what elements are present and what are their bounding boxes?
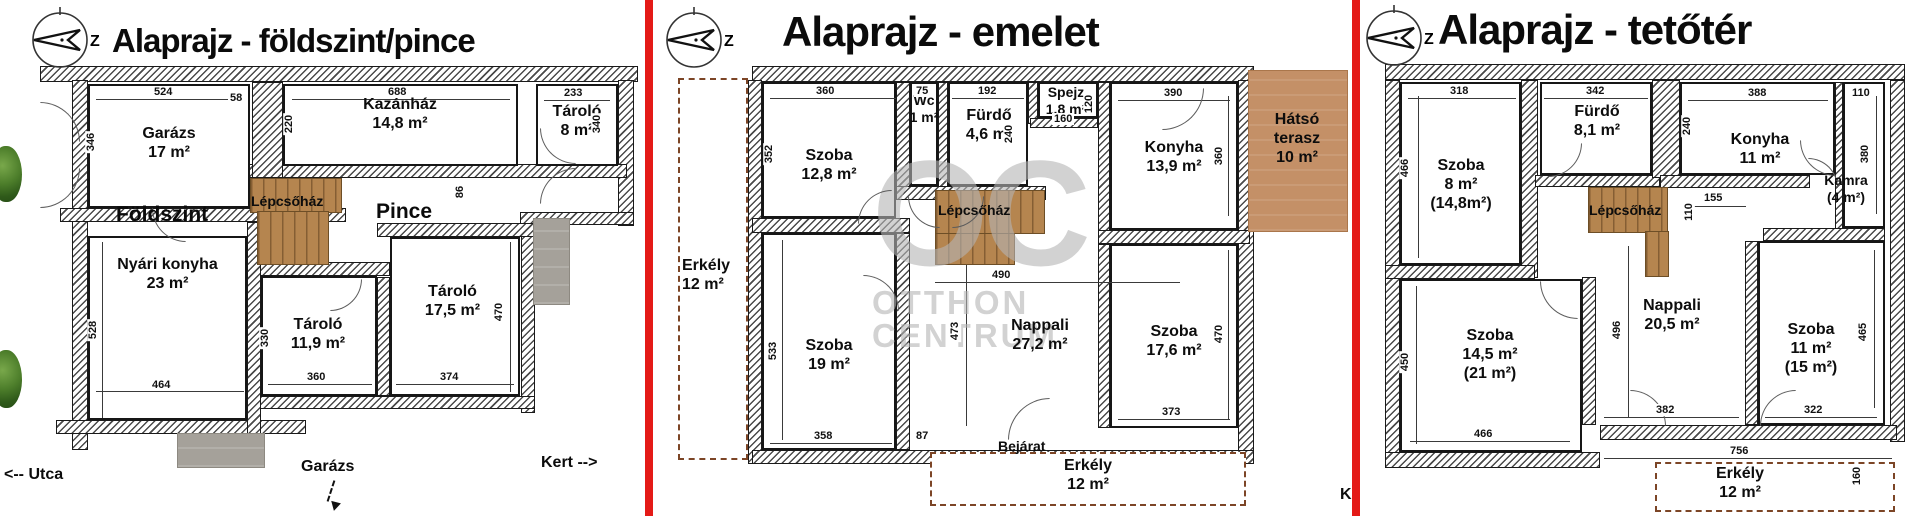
wall	[1385, 265, 1535, 279]
room-area: 12,8 m²	[774, 165, 884, 184]
dim-label: 688	[386, 86, 408, 98]
dim-label: 466	[1472, 428, 1494, 440]
dim-label: 388	[1746, 87, 1768, 99]
wall	[896, 233, 910, 450]
dim-label: 490	[990, 269, 1012, 281]
dim-label: 110	[1850, 87, 1872, 99]
dim-label: 360	[305, 371, 327, 383]
tree-icon	[0, 350, 22, 408]
dim-label: 466	[1399, 157, 1411, 179]
room-name: Erkély	[1698, 464, 1782, 483]
dim-label: 87	[914, 430, 930, 442]
room-label: Tároló 17,5 m²	[400, 282, 505, 320]
room-area: 12 m²	[1698, 483, 1782, 502]
floorplan-sheet: Z Alaprajz - földszint/pince Lépcsőház F…	[0, 0, 1920, 516]
room-name: Tároló	[268, 315, 368, 334]
room-area: 12 m²	[682, 275, 746, 294]
wall	[1652, 80, 1680, 178]
room-area: 17 m²	[114, 143, 224, 162]
dim-label: 155	[1702, 192, 1724, 204]
room-label: Szoba 8 m² (14,8m²)	[1404, 156, 1518, 214]
room-name: Nappali	[985, 316, 1095, 335]
room-label: Nappali 20,5 m²	[1612, 296, 1732, 334]
dim-label: 220	[283, 113, 295, 135]
room-label: Szoba 19 m²	[774, 336, 884, 374]
dim-label: 380	[1859, 143, 1871, 165]
room-name: Erkély	[1048, 456, 1128, 475]
dim-label: 390	[1162, 87, 1184, 99]
room-name: Garázs	[114, 124, 224, 143]
room-area: (15 m²)	[1752, 358, 1870, 377]
dim-label: 240	[1003, 123, 1015, 145]
dim-label: 86	[454, 184, 466, 200]
wall	[1835, 82, 1843, 230]
room-name: Hátsó	[1252, 110, 1342, 129]
note-kert: Kert -->	[541, 454, 597, 472]
stairs-label: Lépcsőház	[1589, 202, 1661, 219]
cut-label: K	[1340, 485, 1352, 504]
dim-label: 322	[1802, 404, 1824, 416]
note-utca: <-- Utca	[4, 466, 63, 484]
room-name: Szoba	[1420, 326, 1560, 345]
entry-stoop	[533, 218, 570, 305]
wall	[1890, 80, 1905, 442]
stairs	[1645, 231, 1669, 277]
room-area: 14,8 m²	[340, 114, 460, 133]
room-label: Szoba 11 m² (15 m²)	[1752, 320, 1870, 378]
stairs	[935, 233, 1015, 265]
room-area: (14,8m²)	[1404, 194, 1518, 213]
wall	[752, 66, 1254, 82]
dim-label: 373	[1160, 406, 1182, 418]
dim-label: 192	[976, 85, 998, 97]
plan1-title: Alaprajz - földszint/pince	[112, 22, 475, 60]
plan3-title: Alaprajz - tetőtér	[1438, 6, 1751, 54]
dim-label: 470	[493, 301, 505, 323]
room-label: Szoba 14,5 m² (21 m²)	[1420, 326, 1560, 384]
wall	[1535, 175, 1660, 187]
dim-label: 75	[914, 85, 930, 97]
room-name: Tároló	[400, 282, 505, 301]
room-area: 11 m²	[1752, 339, 1870, 358]
room-area: (4 m²)	[1802, 189, 1890, 206]
room-area: 12 m²	[1048, 475, 1128, 494]
room-label: Fürdő 8,1 m²	[1548, 102, 1646, 140]
dim-label: 110	[1683, 201, 1695, 223]
wall	[1600, 425, 1897, 440]
dim-label: 470	[1213, 323, 1225, 345]
dim-label: 58	[228, 92, 244, 104]
room-name: Szoba	[774, 146, 884, 165]
wall	[40, 66, 638, 82]
wall	[377, 277, 390, 396]
dim-label: 340	[591, 113, 603, 135]
stairs-label: Lépcsőház	[251, 193, 323, 210]
dim-label: 528	[87, 319, 99, 341]
room-label: Kazánház 14,8 m²	[340, 95, 460, 133]
room-area: 10 m²	[1252, 148, 1342, 167]
plan2-title: Alaprajz - emelet	[782, 8, 1099, 56]
floor-label-foldszint: Földszint	[116, 203, 208, 227]
compass-icon: Z	[28, 6, 106, 75]
wall	[377, 223, 535, 237]
dim-label: 465	[1857, 321, 1869, 343]
room-label: Tároló 11,9 m²	[268, 315, 368, 353]
room-label: Konyha 11 m²	[1702, 130, 1818, 168]
dim-label: 524	[152, 86, 174, 98]
room-area: 19 m²	[774, 355, 884, 374]
dim-label: 374	[438, 371, 460, 383]
dim-label: 360	[814, 85, 836, 97]
wall	[252, 82, 283, 178]
compass-letter: Z	[724, 33, 734, 50]
compass-letter: Z	[1424, 31, 1434, 48]
room-area: 20,5 m²	[1612, 315, 1732, 334]
stairs-label: Lépcsőház	[938, 202, 1010, 219]
room-label: Kamra (4 m²)	[1802, 172, 1890, 206]
room-name: Szoba	[774, 336, 884, 355]
wall	[1385, 64, 1905, 80]
wall	[1763, 228, 1885, 241]
dim-label: 382	[1654, 404, 1676, 416]
room-name: Fürdő	[1548, 102, 1646, 121]
floor-label-pince: Pince	[376, 200, 432, 224]
room-area: 14,5 m²	[1420, 345, 1560, 364]
room-area: 1 m²	[906, 109, 942, 126]
room-name: Nappali	[1612, 296, 1732, 315]
room-label: Nyári konyha 23 m²	[100, 255, 235, 293]
room-name: Kamra	[1802, 172, 1890, 189]
dim-label: 160	[1851, 465, 1863, 487]
room-area: 27,2 m²	[985, 335, 1095, 354]
room-area: 8 m²	[1404, 175, 1518, 194]
dim-label: 318	[1448, 85, 1470, 97]
entrance-label: Bejárat	[998, 438, 1045, 455]
room-name: Konyha	[1702, 130, 1818, 149]
dim-label: 342	[1584, 85, 1606, 97]
dim-label: 464	[150, 379, 172, 391]
note-garazs: Garázs	[301, 458, 354, 476]
room-area: 17,5 m²	[400, 301, 505, 320]
room-label: Hátsó terasz 10 m²	[1252, 110, 1342, 168]
wall	[1098, 82, 1110, 232]
dim-label: 233	[562, 87, 584, 99]
room-label: Erkély 12 m²	[1698, 464, 1782, 502]
dim-label: 240	[1681, 115, 1693, 137]
room-label: Erkély 12 m²	[1048, 456, 1128, 494]
room-name: Szoba	[1404, 156, 1518, 175]
dim-label: 346	[85, 131, 97, 153]
stairs	[257, 211, 329, 265]
dim-label: 160	[1052, 113, 1074, 125]
wall	[1098, 244, 1110, 428]
dim-label: 756	[1728, 445, 1750, 457]
wall	[1385, 452, 1600, 468]
room-area: 23 m²	[100, 274, 235, 293]
room-label: Nappali 27,2 m²	[985, 316, 1095, 354]
separator-line	[1352, 0, 1360, 516]
room-area: 11 m²	[1702, 149, 1818, 168]
wall	[748, 80, 762, 464]
dim-label: 330	[259, 327, 271, 349]
separator-line	[645, 0, 653, 516]
wall	[247, 396, 535, 409]
compass-icon: Z	[1362, 4, 1440, 73]
arrowhead-icon	[329, 501, 341, 512]
wall	[1582, 277, 1596, 425]
room-name: Nyári konyha	[100, 255, 235, 274]
wall	[1098, 230, 1250, 244]
room-name: Erkély	[682, 256, 746, 275]
dim-label: 360	[1213, 145, 1225, 167]
room-name: Szoba	[1752, 320, 1870, 339]
arrow-down-icon	[327, 480, 336, 502]
dim-label: 352	[763, 143, 775, 165]
dim-label: 473	[949, 320, 961, 342]
dim-label: 450	[1399, 351, 1411, 373]
wall	[618, 80, 634, 226]
entry-stoop	[177, 433, 265, 468]
room-area: (21 m²)	[1420, 364, 1560, 383]
room-label: Garázs 17 m²	[114, 124, 224, 162]
tree-icon	[0, 146, 22, 202]
compass-icon: Z	[662, 6, 740, 75]
dim-label: 496	[1611, 319, 1623, 341]
wall	[56, 420, 306, 434]
room-area: 8,1 m²	[1548, 121, 1646, 140]
room-label: Wc 1 m²	[906, 92, 942, 126]
room-name: terasz	[1252, 129, 1342, 148]
dim-label: 120	[1083, 93, 1095, 115]
room-area: 11,9 m²	[268, 334, 368, 353]
dim-label: 358	[812, 430, 834, 442]
room-label: Szoba 12,8 m²	[774, 146, 884, 184]
room-label: Erkély 12 m²	[682, 256, 746, 294]
compass-letter: Z	[90, 33, 100, 50]
dim-label: 533	[767, 340, 779, 362]
wall	[1660, 175, 1810, 188]
